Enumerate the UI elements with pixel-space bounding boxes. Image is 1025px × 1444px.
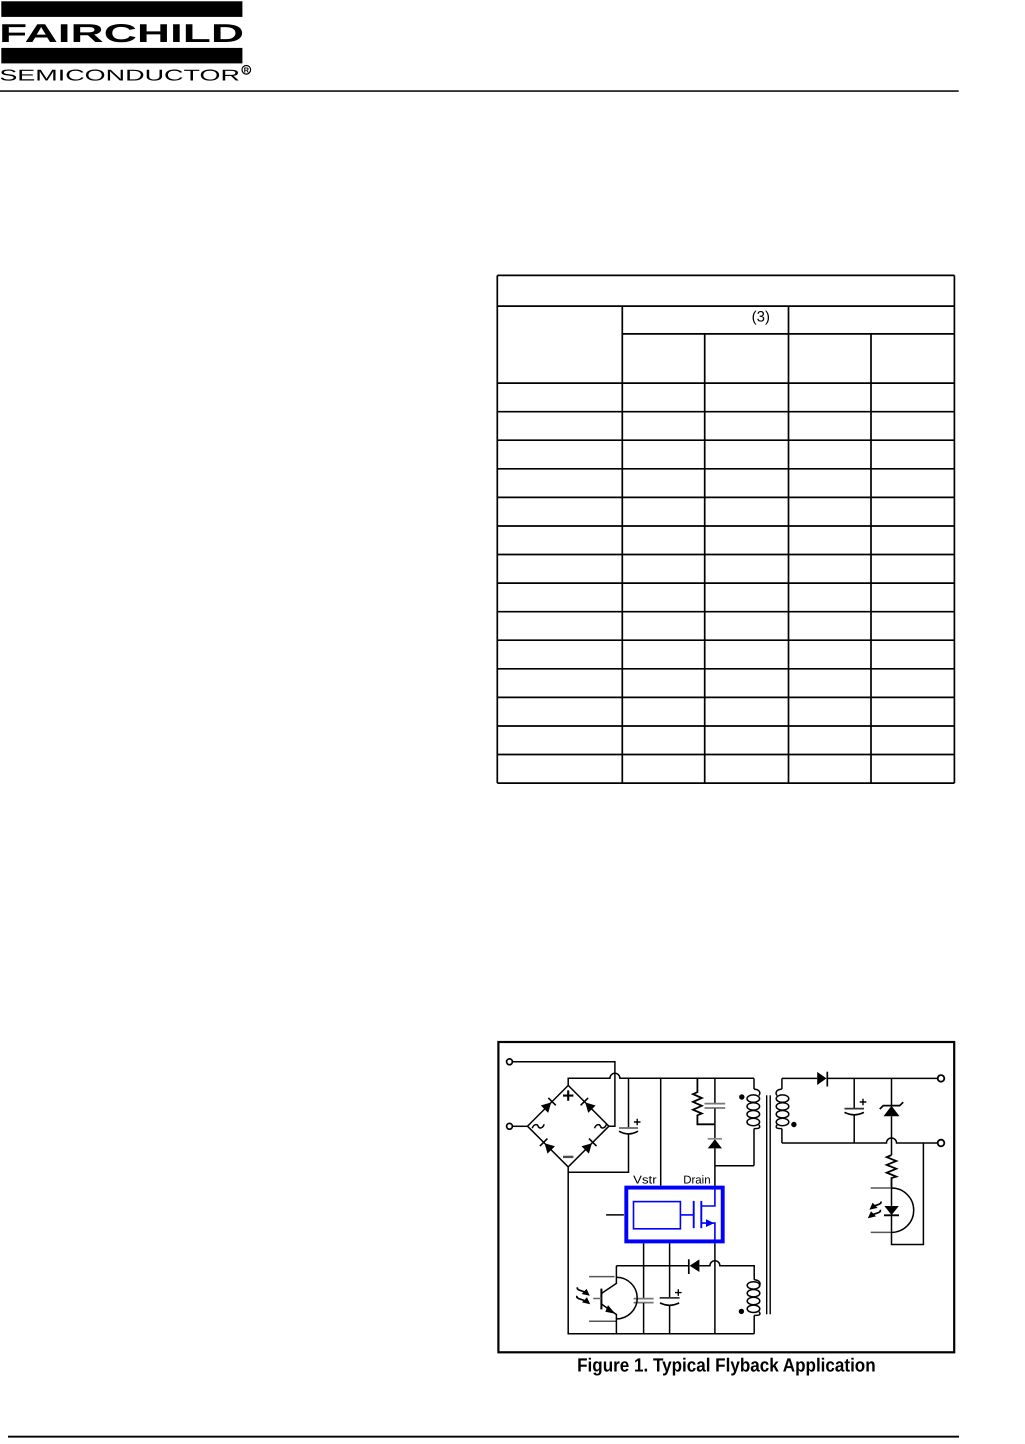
svg-text:FAIRCHILD: FAIRCHILD bbox=[0, 20, 244, 48]
svg-text:Drain: Drain bbox=[683, 1174, 710, 1186]
svg-text:Figure 1. Typical Flyback Appl: Figure 1. Typical Flyback Application bbox=[577, 1356, 876, 1377]
svg-text:R: R bbox=[244, 65, 250, 74]
svg-text:Vstr: Vstr bbox=[633, 1174, 657, 1186]
svg-text:SEMICONDUCTOR: SEMICONDUCTOR bbox=[0, 68, 240, 85]
svg-text:(3): (3) bbox=[752, 308, 770, 325]
